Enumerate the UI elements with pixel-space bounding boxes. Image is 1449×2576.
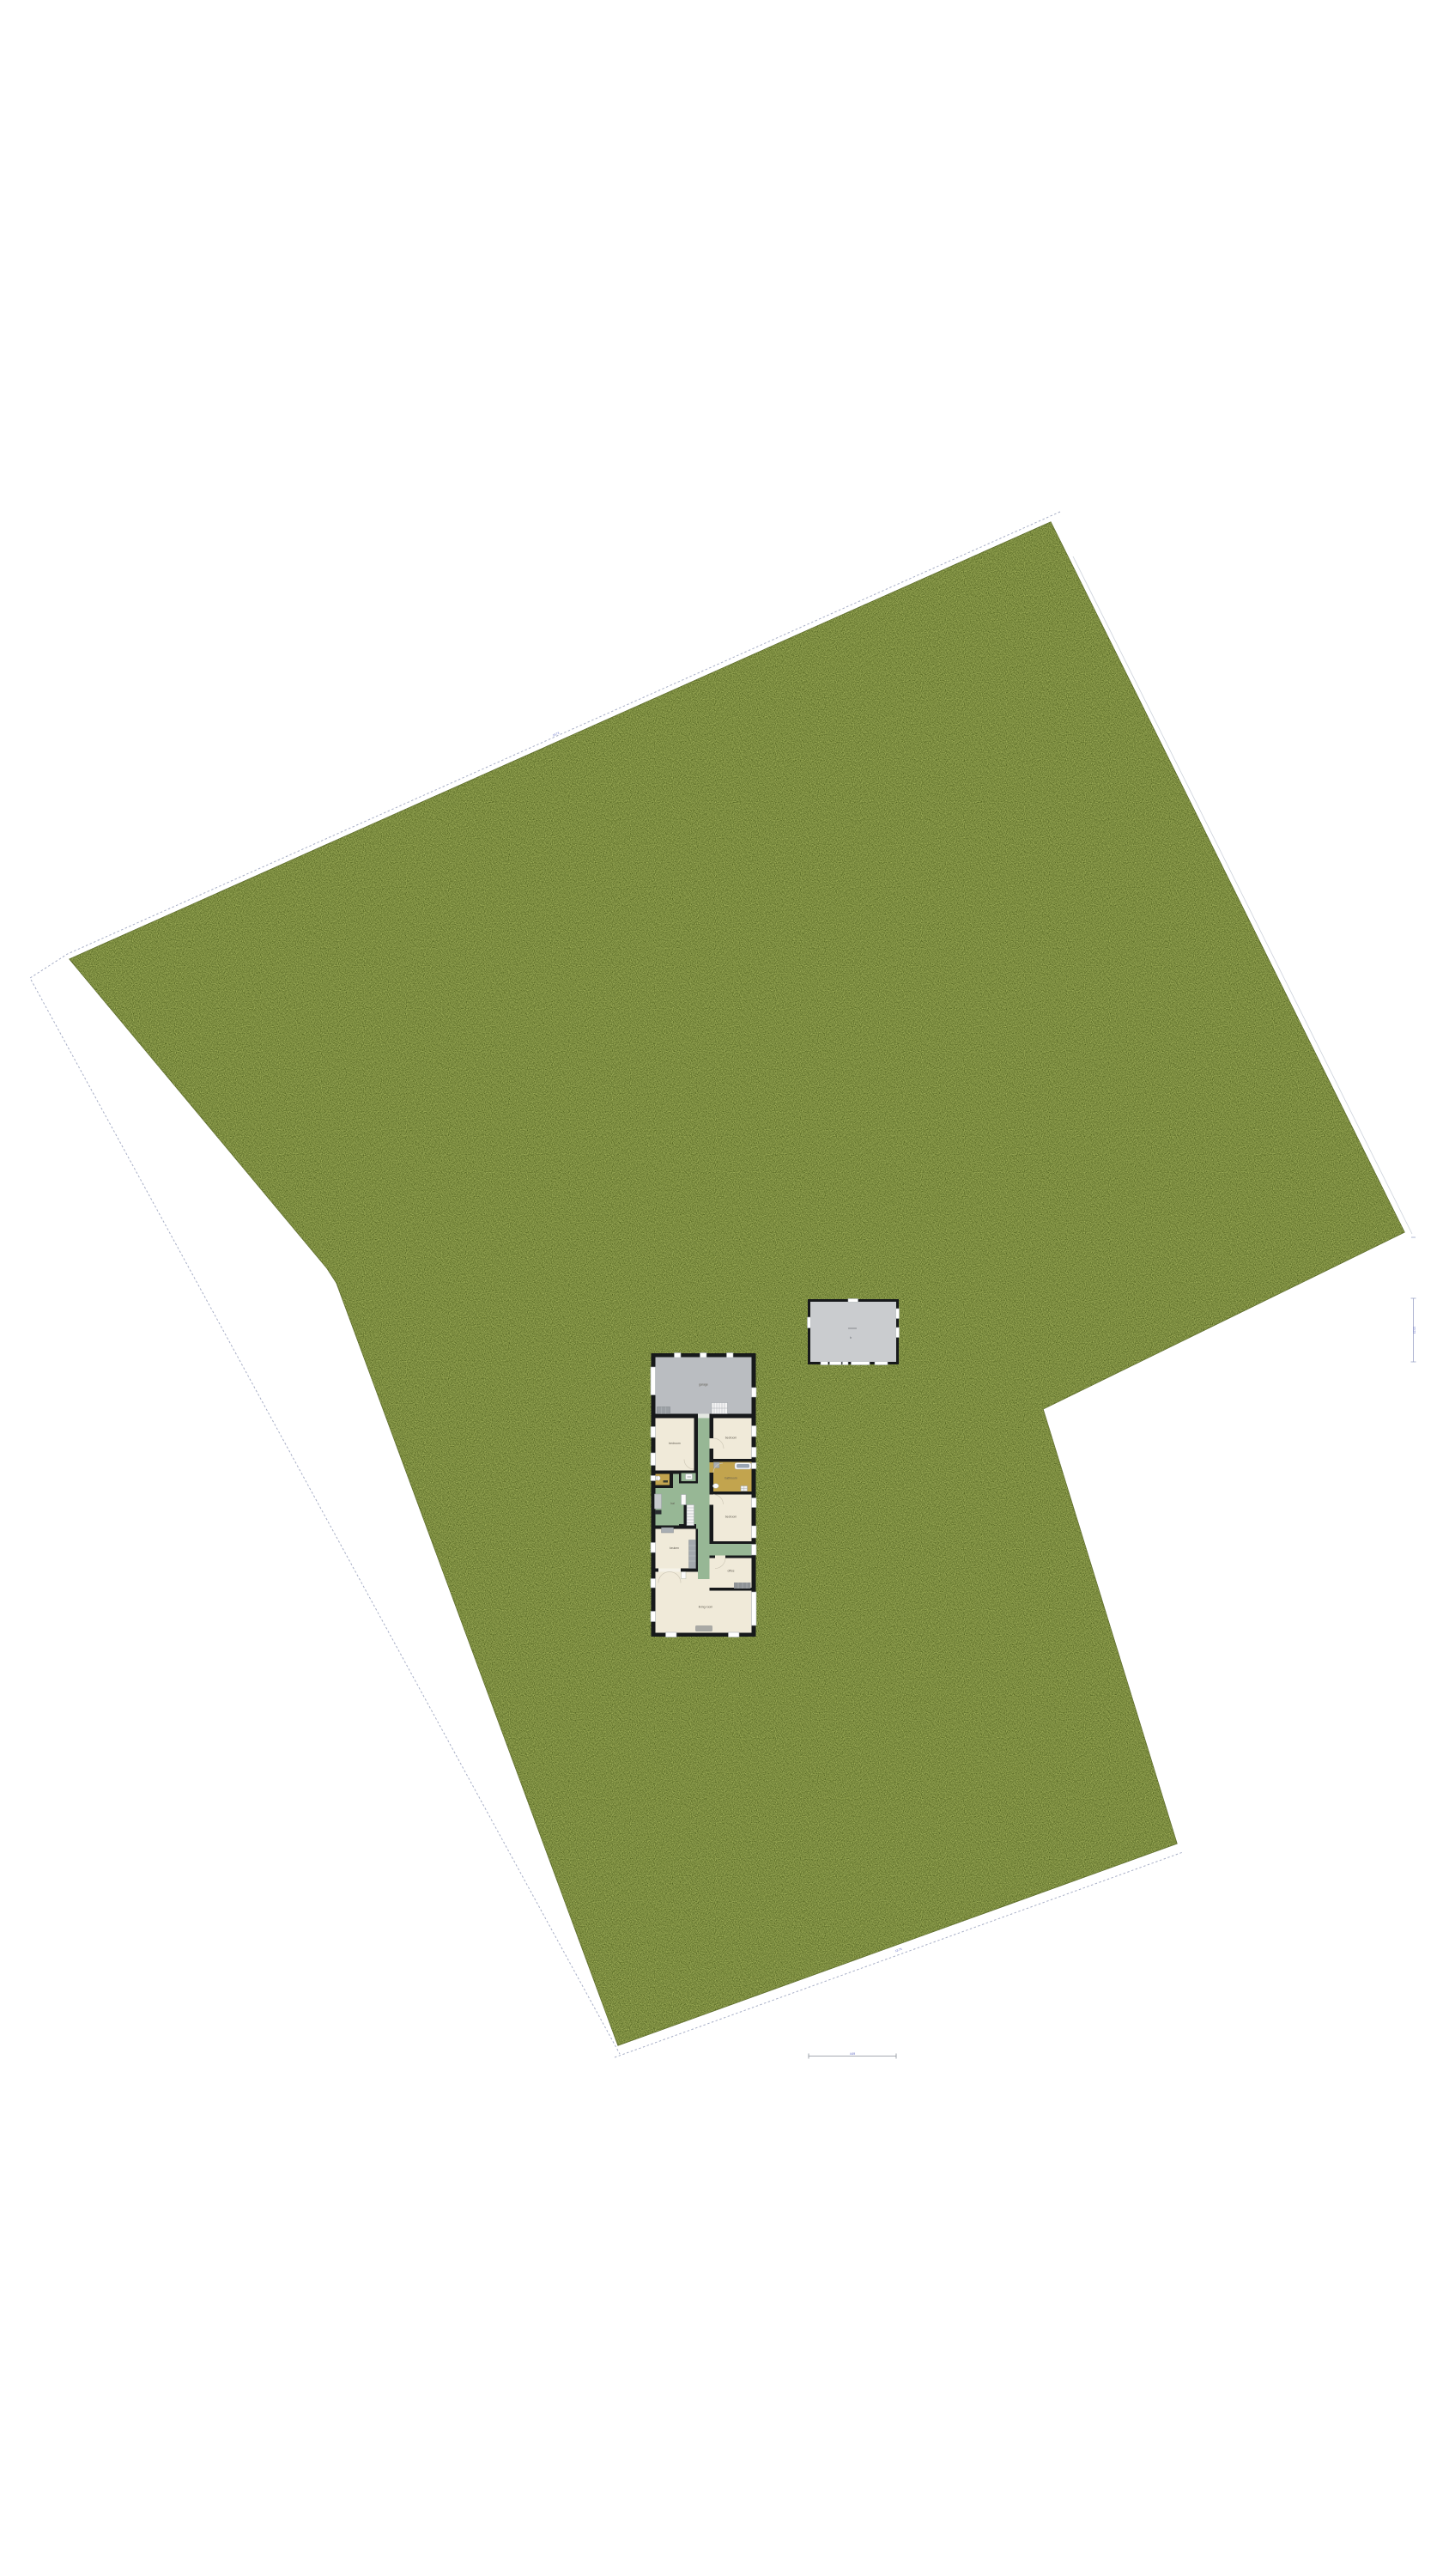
- svg-text:bedroom: bedroom: [669, 1442, 681, 1445]
- svg-text:office: office: [727, 1570, 734, 1573]
- svg-text:4.69: 4.69: [850, 2052, 855, 2056]
- svg-text:bathroom: bathroom: [724, 1477, 737, 1480]
- svg-text:18.73: 18.73: [552, 732, 560, 738]
- svg-text:hal: hal: [670, 1502, 675, 1505]
- svg-text:bedroom: bedroom: [725, 1437, 737, 1440]
- svg-text:garage: garage: [699, 1383, 708, 1387]
- svg-text:bedroom: bedroom: [725, 1516, 737, 1519]
- svg-text:living room: living room: [699, 1605, 713, 1608]
- svg-text:keuken: keuken: [670, 1546, 679, 1550]
- svg-text:13.73: 13.73: [894, 1947, 902, 1953]
- svg-text:10.23: 10.23: [1413, 1327, 1416, 1334]
